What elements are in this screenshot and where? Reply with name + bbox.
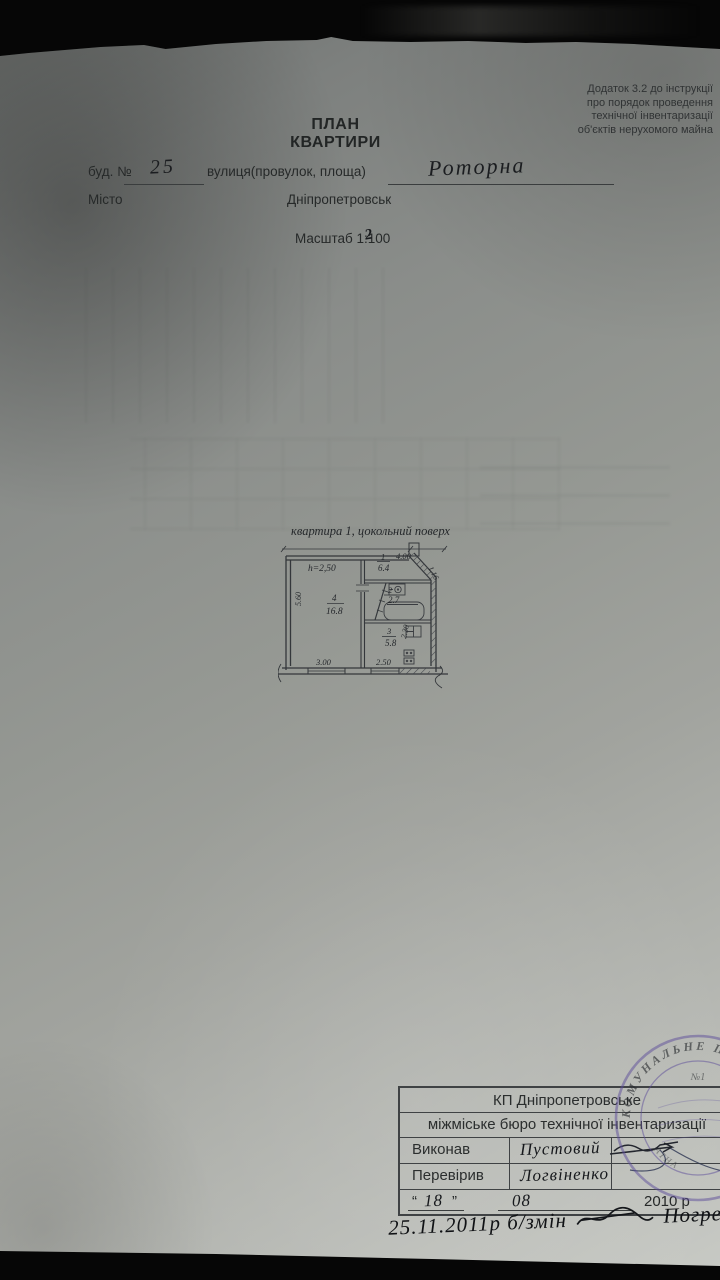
room3-number: 3 bbox=[386, 626, 391, 636]
svg-text:АТНА: АТНА bbox=[652, 1144, 681, 1171]
regulation-note-line: про порядок проведення bbox=[538, 97, 713, 111]
city-value: Дніпропетровськ bbox=[287, 192, 391, 207]
room2-area: 2.7 bbox=[388, 595, 400, 605]
dim-top: 4.00 bbox=[396, 551, 412, 561]
building-number-label: буд. № bbox=[88, 164, 132, 179]
room1-number: 1 bbox=[381, 552, 385, 562]
executor-label: Виконав bbox=[400, 1138, 510, 1163]
regulation-note-line: Додаток 3.2 до інструкції bbox=[538, 83, 713, 97]
dim-bottom-left: 3.00 bbox=[315, 657, 332, 667]
room1-area: 6.4 bbox=[378, 563, 390, 573]
regulation-note-line: об'єктів нерухомого майна bbox=[538, 124, 713, 138]
street-underline bbox=[388, 183, 614, 185]
plan-walls bbox=[278, 543, 448, 688]
room4-area: 16.8 bbox=[326, 607, 343, 617]
title-line1: ПЛАН bbox=[278, 116, 393, 134]
verifier-label: Перевірив bbox=[400, 1164, 510, 1189]
city-label: Місто bbox=[88, 192, 123, 207]
round-stamp: КОМУНАЛЬНЕ П №1 АТНА bbox=[558, 1018, 720, 1218]
scale-line: Масштаб 1:1002 bbox=[295, 231, 390, 246]
room4-number: 4 bbox=[332, 593, 337, 603]
scale-prefix: Масштаб 1: bbox=[295, 231, 368, 246]
ceiling-height-label: h=2,50 bbox=[308, 564, 336, 574]
day-underline bbox=[408, 1209, 464, 1211]
quote-close: ” bbox=[452, 1193, 457, 1210]
dim-right-top: 1.16 bbox=[426, 565, 441, 582]
footnote-name: Погреб bbox=[663, 1201, 720, 1228]
floor-plan-drawing: h=2,50 5.60 4 16.8 1 6.4 4.00 1.16 2 2.7… bbox=[278, 540, 458, 692]
room2-number: 2 bbox=[388, 585, 393, 595]
dim-left: 5.60 bbox=[294, 592, 303, 606]
document-title: ПЛАН КВАРТИРИ bbox=[278, 116, 393, 151]
street-value: Роторна bbox=[428, 152, 526, 181]
building-number-value: 25 bbox=[149, 155, 176, 179]
plan-caption: квартира 1, цокольний поверх bbox=[291, 524, 450, 539]
stamp-number: №1 bbox=[690, 1072, 705, 1083]
scale-value: 1002 bbox=[368, 231, 391, 246]
regulation-note: Додаток 3.2 до інструкції про порядок пр… bbox=[538, 83, 713, 137]
regulation-note-line: технічної інвентаризації bbox=[538, 110, 713, 124]
room3-area: 5.8 bbox=[385, 638, 397, 648]
plan-labels: h=2,50 5.60 4 16.8 1 6.4 4.00 1.16 2 2.7… bbox=[294, 551, 441, 667]
building-number-underline bbox=[124, 183, 204, 185]
quote-open: “ bbox=[412, 1193, 417, 1210]
footnote-signature bbox=[573, 1203, 658, 1233]
stove-icon bbox=[404, 650, 414, 664]
stamp-inner-text: АТНА bbox=[652, 1144, 681, 1171]
street-label: вулиця(провулок, площа) bbox=[207, 164, 366, 179]
photo-of-document: Додаток 3.2 до інструкції про порядок пр… bbox=[0, 0, 720, 1280]
background-glare bbox=[360, 6, 700, 36]
dim-room3-bottom: 2.50 bbox=[376, 657, 392, 667]
title-line2: КВАРТИРИ bbox=[278, 134, 393, 152]
bleedthrough-text bbox=[480, 445, 670, 525]
bleedthrough-marks bbox=[64, 268, 384, 423]
